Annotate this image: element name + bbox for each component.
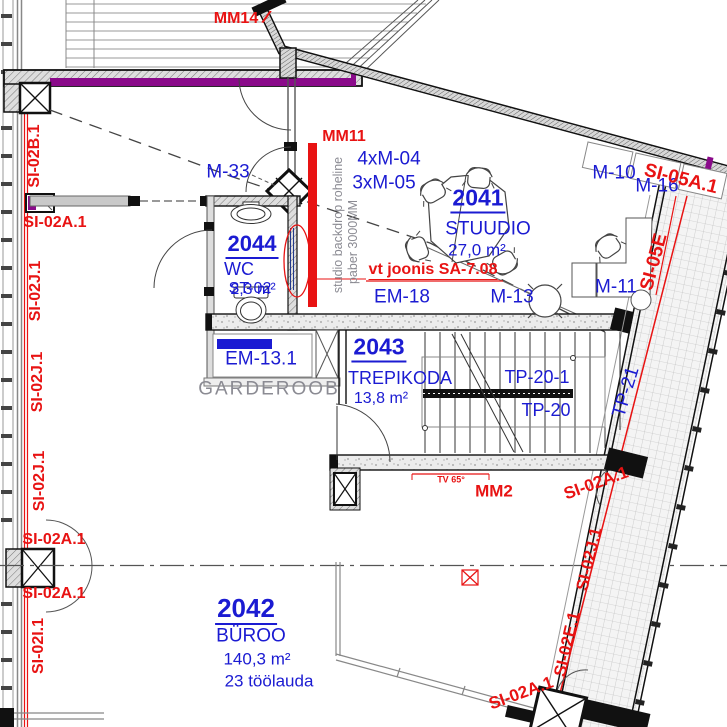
label-garderoob: GARDEROOB bbox=[198, 380, 340, 399]
label-4xm04: 4xM-04 bbox=[357, 150, 420, 169]
room-2042-number: 2042 bbox=[215, 595, 277, 625]
mark-si02j1-w2: SI-02J.1 bbox=[30, 352, 46, 412]
corridor-wall bbox=[30, 196, 212, 206]
room-2043-area: 13,8 m² bbox=[354, 391, 408, 407]
mark-mm14: MM14 bbox=[214, 11, 258, 27]
mark-mm11: MM11 bbox=[322, 129, 366, 145]
note-see-drawing: vt joonis SA-7.08 bbox=[369, 262, 498, 280]
north-wall bbox=[4, 70, 362, 113]
room-2042-desks: 23 töölauda bbox=[225, 673, 314, 690]
label-em13-1: EM-13.1 bbox=[225, 350, 297, 369]
wc-door-swing bbox=[154, 230, 212, 288]
room-2042-name: BÜROO bbox=[216, 627, 286, 646]
mark-si02j1-w3: SI-02J.1 bbox=[32, 451, 48, 511]
label-m13: M-13 bbox=[490, 288, 533, 307]
room-2042-area: 140,3 m² bbox=[223, 651, 290, 668]
stair-door-swing bbox=[336, 404, 390, 462]
mark-si02j1-w1: SI-02J.1 bbox=[28, 261, 44, 321]
mark-tv65: TV 65° bbox=[437, 476, 465, 485]
room-2044-number: 2044 bbox=[226, 233, 279, 259]
floorplan-canvas: MM14 / M-33 MM11 studio backdrop rohelin… bbox=[0, 0, 727, 727]
mark-si02b1: SI-02B.1 bbox=[27, 124, 43, 187]
room-2041-area: 27,0 m² bbox=[448, 242, 506, 259]
room-2044-name: WC bbox=[224, 260, 254, 278]
room-2041-name: STUUDIO bbox=[445, 220, 531, 239]
garderoob-pier bbox=[316, 330, 338, 378]
room-2043-number: 2043 bbox=[351, 336, 406, 363]
column-stair-south bbox=[330, 468, 360, 510]
label-tp20: TP-20 bbox=[521, 401, 570, 419]
room-2044-area: 2,3 m² bbox=[230, 282, 275, 298]
mark-si02a1-w2: SI-02A.1 bbox=[22, 532, 85, 548]
label-3xm05: 3xM-05 bbox=[352, 174, 415, 193]
floorplan-linework bbox=[0, 0, 727, 727]
backdrop-note-line1: studio backdrop roheline bbox=[332, 157, 345, 293]
label-m10: M-10 bbox=[592, 164, 635, 183]
mark-si02a1-w1: SI-02A.1 bbox=[23, 215, 86, 231]
grid-marker-box bbox=[462, 570, 478, 585]
label-em18: EM-18 bbox=[374, 288, 430, 307]
label-tp20-1: TP-20-1 bbox=[504, 368, 569, 386]
mark-mm2: MM2 bbox=[475, 483, 513, 500]
label-m11: M-11 bbox=[595, 278, 637, 297]
mark-si02i1: SI-02I.1 bbox=[31, 618, 47, 674]
em-13-1-element bbox=[217, 339, 272, 349]
room-2043-name: TREPIKODA bbox=[348, 369, 452, 387]
label-m33: M-33 bbox=[206, 163, 249, 182]
column-nw bbox=[20, 83, 50, 113]
room-2041-number: 2041 bbox=[450, 187, 505, 214]
mark-si02a1-w3: SI-02A.1 bbox=[22, 586, 85, 602]
backdrop-note-line2: paber 3000MM bbox=[347, 200, 360, 284]
